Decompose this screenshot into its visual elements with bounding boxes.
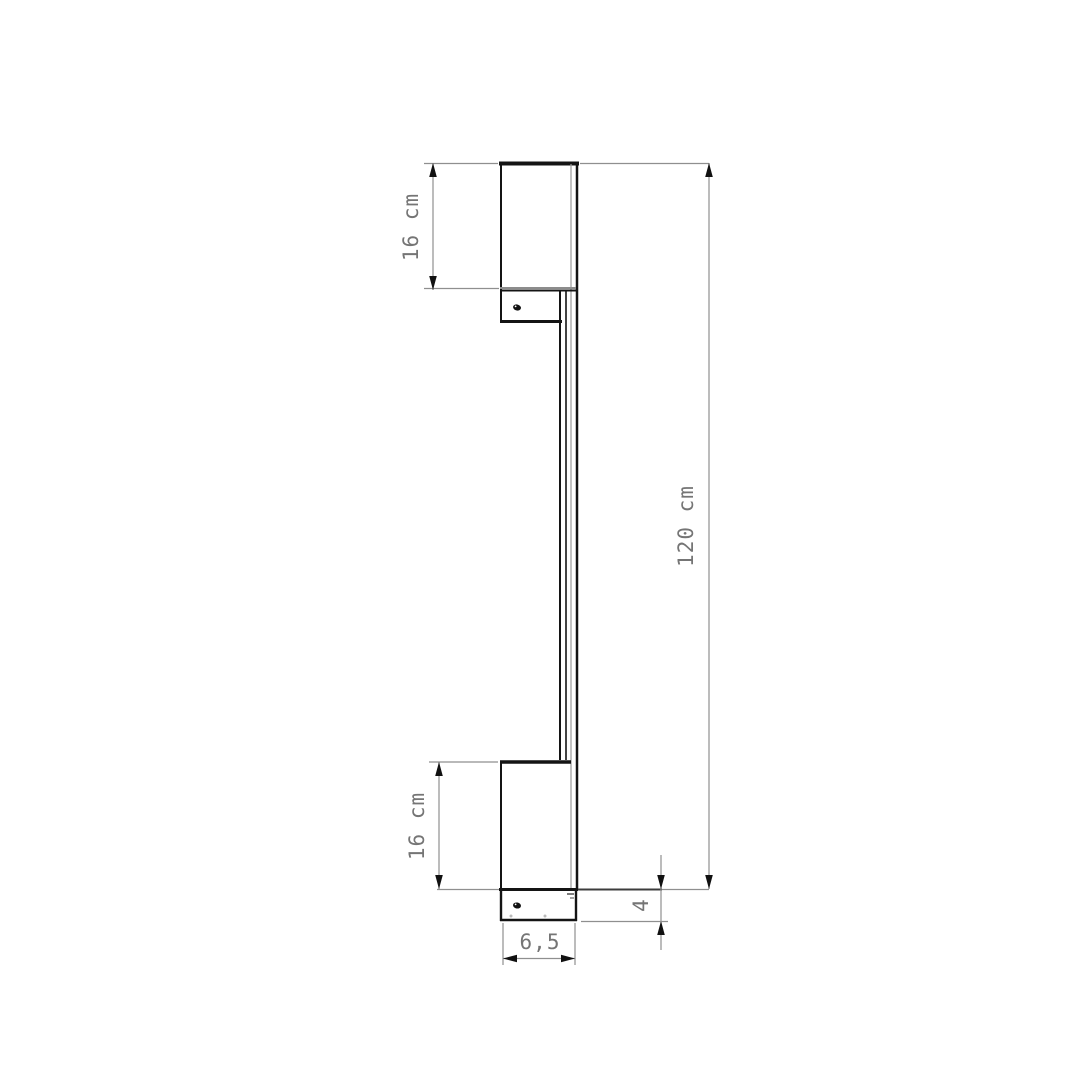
dim-label-4: 4 <box>629 898 653 912</box>
arrow-left-icon <box>503 955 517 963</box>
base-screw <box>513 902 522 909</box>
dim-label-top-16cm: 16 cm <box>399 193 423 261</box>
arrow-down-icon <box>705 875 713 889</box>
technical-drawing: 16 cm 120 cm 16 cm 4 6,5 <box>0 0 1080 1080</box>
arrow-up-icon <box>429 163 437 177</box>
drawing-canvas: 16 cm 120 cm 16 cm 4 6,5 <box>0 0 1080 1080</box>
arrow-up-icon <box>657 921 665 935</box>
base-screw-highlight <box>515 904 517 906</box>
dim-label-6-5: 6,5 <box>520 930 561 954</box>
dimension-top-bracket-height: 16 cm <box>399 163 499 290</box>
dim-label-bottom-16cm: 16 cm <box>405 792 429 860</box>
dim-label-120cm: 120 cm <box>674 485 698 567</box>
base-dot-2 <box>544 915 546 917</box>
arrow-right-icon <box>561 955 575 963</box>
lamp-outline <box>499 162 579 921</box>
dimension-total-height: 120 cm <box>578 163 713 890</box>
arrow-up-icon <box>435 762 443 776</box>
arrow-down-icon <box>435 875 443 889</box>
dimension-base-width: 6,5 <box>503 923 575 965</box>
base-dot-1 <box>510 915 512 917</box>
dimension-bottom-bracket-height: 16 cm <box>405 762 499 890</box>
arrow-up-icon <box>705 163 713 177</box>
arrow-down-icon <box>657 875 665 889</box>
dimension-base-depth: 4 <box>581 855 668 950</box>
top-bracket-screw <box>512 304 521 312</box>
top-screw-highlight <box>515 306 517 308</box>
